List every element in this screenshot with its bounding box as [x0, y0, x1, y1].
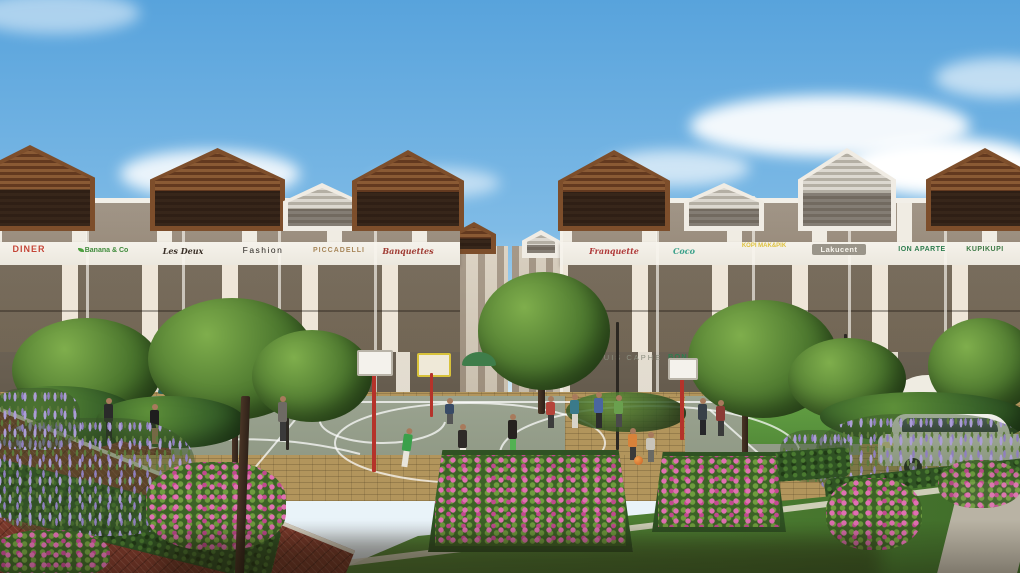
cloud: [935, 58, 1020, 98]
person-kid: [445, 398, 454, 424]
right-gable-2: [798, 148, 896, 231]
cloud: [0, 0, 140, 34]
left-gable-3: [352, 150, 464, 231]
shop-sign-diner: DINER: [6, 244, 52, 254]
left-gable-2: [150, 148, 285, 231]
right-gable-low: [684, 183, 764, 231]
central-tree-canopy: [478, 272, 610, 390]
shop-sign-fashion: Fashion: [240, 245, 286, 255]
shop-sign-banquettes: Banquettes: [372, 246, 444, 256]
lavender-cluster-left-upper: [0, 388, 80, 450]
basketball-backboard-yellow: [417, 353, 451, 377]
shop-sign-coco: Coco: [664, 246, 704, 256]
flower-bed-right-blooms: [658, 456, 780, 527]
shop-sign-ion-aparte: ION APARTE: [892, 246, 952, 253]
person-maroon: [716, 400, 725, 436]
person-blue-shirt: [594, 392, 603, 428]
flower-cluster-far-right: [938, 460, 1020, 508]
person-light: [646, 432, 655, 462]
person-red-shirt: [546, 396, 555, 428]
basketball-backboard-white: [668, 358, 698, 380]
person-green-shirt: [614, 395, 623, 427]
hoop-pole: [430, 373, 433, 417]
orange-ball: [634, 456, 643, 465]
shop-sign-lakucent: Lakucent: [812, 244, 866, 255]
bottom-vignette: [0, 520, 1020, 573]
hoop-pole: [372, 360, 376, 472]
shop-sign-banana-co: Banana & Co: [66, 247, 140, 254]
right-gable-1: [558, 150, 670, 231]
leaf-icon: [78, 248, 84, 252]
shop-sign-franquette: Franquette: [586, 246, 642, 256]
distant-gable: [522, 230, 560, 258]
render-scene: DINER Banana & Co Les Deux Fashion PICCA…: [0, 0, 1020, 573]
left-gable-low: [283, 183, 361, 231]
person-dark: [698, 398, 707, 436]
right-gable-3: [926, 148, 1020, 231]
shop-sign-kopi: KOPI MAK&PIK: [740, 243, 788, 250]
person-toddler-orange: [628, 428, 637, 460]
left-gable-1: [0, 145, 95, 231]
shop-sign-les-deux: Les Deux: [158, 246, 208, 256]
person-teal-shirt: [570, 394, 579, 428]
shop-sign-kupikupi: KUPIKUPI: [958, 246, 1012, 253]
tree-canopy: [252, 330, 372, 422]
person-gray-blazer: [278, 396, 287, 444]
shop-sign-piccadelli: PICCADELLI: [310, 247, 368, 254]
basketball-backboard-white: [357, 350, 393, 376]
